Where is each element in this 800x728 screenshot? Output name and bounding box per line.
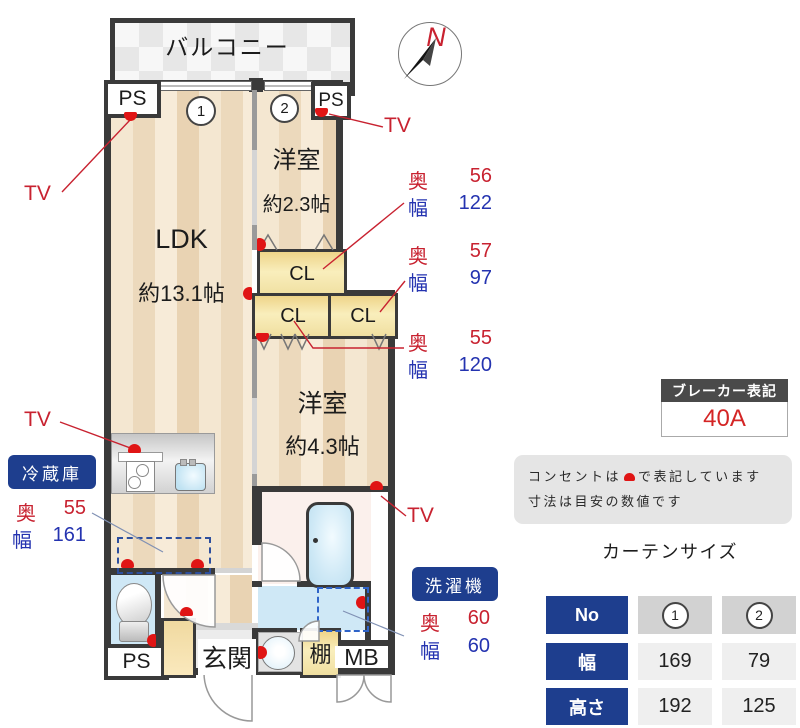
- ps-label: PS: [122, 650, 150, 674]
- outlet: [147, 634, 156, 647]
- closet1-width: 幅122: [408, 192, 492, 221]
- legend-note: コンセントはで表記しています 寸法は目安の数値です: [514, 455, 792, 524]
- closet-3: CL: [328, 293, 398, 339]
- mb-door-right-arc: [364, 675, 391, 702]
- faucet: [180, 459, 187, 466]
- closet2-width: 幅97: [408, 267, 492, 296]
- bedroom1-name: 洋室: [255, 140, 338, 175]
- curtain-col1-badge: 1: [662, 602, 689, 629]
- wall-bath-washroom-a: [252, 581, 262, 587]
- curtain-height-1: 192: [638, 688, 712, 725]
- legend-line2: 寸法は目安の数値です: [528, 489, 778, 514]
- washer-depth: 奥60: [420, 607, 490, 636]
- curtain-height-2: 125: [722, 688, 796, 725]
- curtain-row-height-label: 高さ: [546, 688, 628, 725]
- closet3-width: 幅120: [408, 354, 492, 383]
- closet1-depth: 奥56: [408, 165, 492, 194]
- shoe-storage: [161, 618, 196, 678]
- floorplan-canvas: PS PS PS CL CL CL 棚 MB: [0, 0, 800, 728]
- washer-badge: 洗濯機: [412, 567, 498, 601]
- balcony-label: バルコニー: [110, 28, 345, 62]
- outlet: [356, 596, 365, 609]
- wall-left: [104, 80, 111, 675]
- breaker-title: ブレーカー表記: [661, 379, 788, 402]
- breaker-box: ブレーカー表記 40A: [661, 379, 788, 437]
- bathtub: [306, 502, 354, 588]
- curtain-row-width-label: 幅: [546, 643, 628, 680]
- entrance-door-arc: [204, 673, 252, 721]
- closet-label: CL: [350, 305, 376, 328]
- bedroom2-name: 洋室: [257, 384, 388, 420]
- shaft-space: [371, 492, 388, 640]
- curtain-width-1: 169: [638, 643, 712, 680]
- outlet: [370, 481, 383, 490]
- bedroom2-size: 約4.3帖: [257, 429, 388, 461]
- closet-label: CL: [280, 305, 306, 328]
- tv-label-1: TV: [24, 182, 51, 206]
- closet2-depth: 奥57: [408, 240, 492, 269]
- outlet: [191, 559, 204, 568]
- ldk-name: LDK: [111, 224, 252, 255]
- washer-width: 幅60: [420, 635, 490, 664]
- curtain-col2-badge: 2: [746, 602, 773, 629]
- curtain-col1-header: 1: [638, 596, 712, 634]
- tv-label-2: TV: [384, 114, 411, 138]
- stove-burner-2: [128, 476, 141, 489]
- outlet: [128, 444, 141, 453]
- shelf-label: 棚: [309, 637, 331, 669]
- outlet: [121, 559, 134, 568]
- fridge-space: [117, 537, 211, 574]
- fridge-width: 幅161: [12, 524, 86, 553]
- window-1-badge: 1: [186, 96, 216, 126]
- curtain-title: カーテンサイズ: [545, 538, 795, 564]
- ldk-size: 約13.1帖: [111, 276, 252, 308]
- toilet-tank: [119, 621, 149, 642]
- window-1: [155, 81, 252, 91]
- tv-label-4: TV: [407, 504, 434, 528]
- closet3-depth: 奥55: [408, 327, 492, 356]
- legend-line1: コンセントはで表記しています: [528, 464, 778, 489]
- mb-door-left-arc: [337, 675, 364, 702]
- opening-kitchen: [215, 568, 252, 573]
- closet-1: CL: [257, 249, 347, 299]
- meter-box: MB: [335, 646, 388, 668]
- faucet-2: [189, 459, 196, 466]
- compass-n-label: N: [420, 22, 452, 53]
- ps-label: PS: [118, 87, 146, 111]
- closet-label: CL: [289, 263, 315, 286]
- bedroom1-size: 約2.3帖: [253, 188, 340, 217]
- stove-burner-1: [136, 464, 149, 477]
- curtain-no-header: No: [546, 596, 628, 634]
- fridge-depth: 奥55: [16, 497, 86, 526]
- kitchen-sink: [175, 463, 206, 491]
- breaker-value: 40A: [661, 402, 788, 437]
- fridge-badge: 冷蔵庫: [8, 455, 96, 489]
- curtain-col2-header: 2: [722, 596, 796, 634]
- window-2-badge: 2: [270, 94, 299, 123]
- ldk-floor: [111, 90, 252, 570]
- bathtub-drain: [313, 538, 318, 543]
- curtain-width-2: 79: [722, 643, 796, 680]
- tv-label-3: TV: [24, 408, 51, 432]
- outlet: [180, 607, 193, 616]
- outlet-legend-icon: [624, 473, 635, 481]
- wall-right-lower: [388, 290, 395, 675]
- entrance-label: 玄関: [198, 639, 256, 675]
- washer-space: [317, 587, 369, 632]
- window-2: [264, 81, 312, 91]
- mb-label: MB: [344, 644, 379, 671]
- entrance-step: [192, 623, 258, 630]
- ps-box-bottom: PS: [104, 644, 169, 680]
- wall-bath-left: [252, 492, 262, 545]
